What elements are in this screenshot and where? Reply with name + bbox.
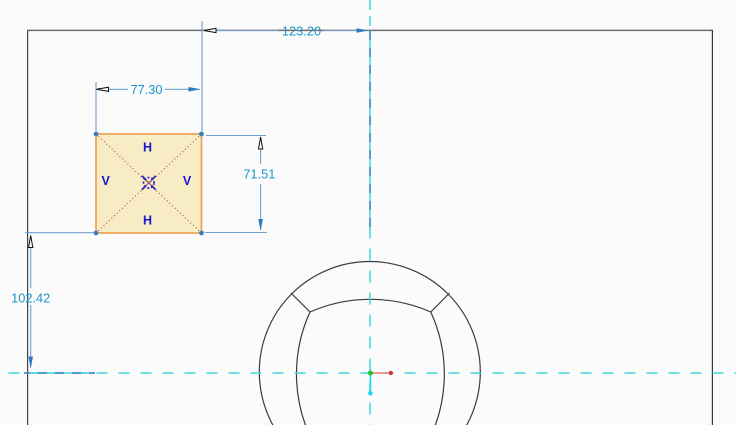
svg-text:71.51: 71.51 [243, 167, 275, 182]
svg-text:V: V [183, 174, 192, 188]
svg-text:H: H [143, 141, 152, 155]
svg-text:123.20: 123.20 [282, 24, 321, 39]
svg-text:102.42: 102.42 [11, 291, 50, 306]
svg-text:V: V [102, 174, 111, 188]
svg-text:H: H [143, 214, 152, 228]
svg-text:77.30: 77.30 [130, 82, 162, 97]
